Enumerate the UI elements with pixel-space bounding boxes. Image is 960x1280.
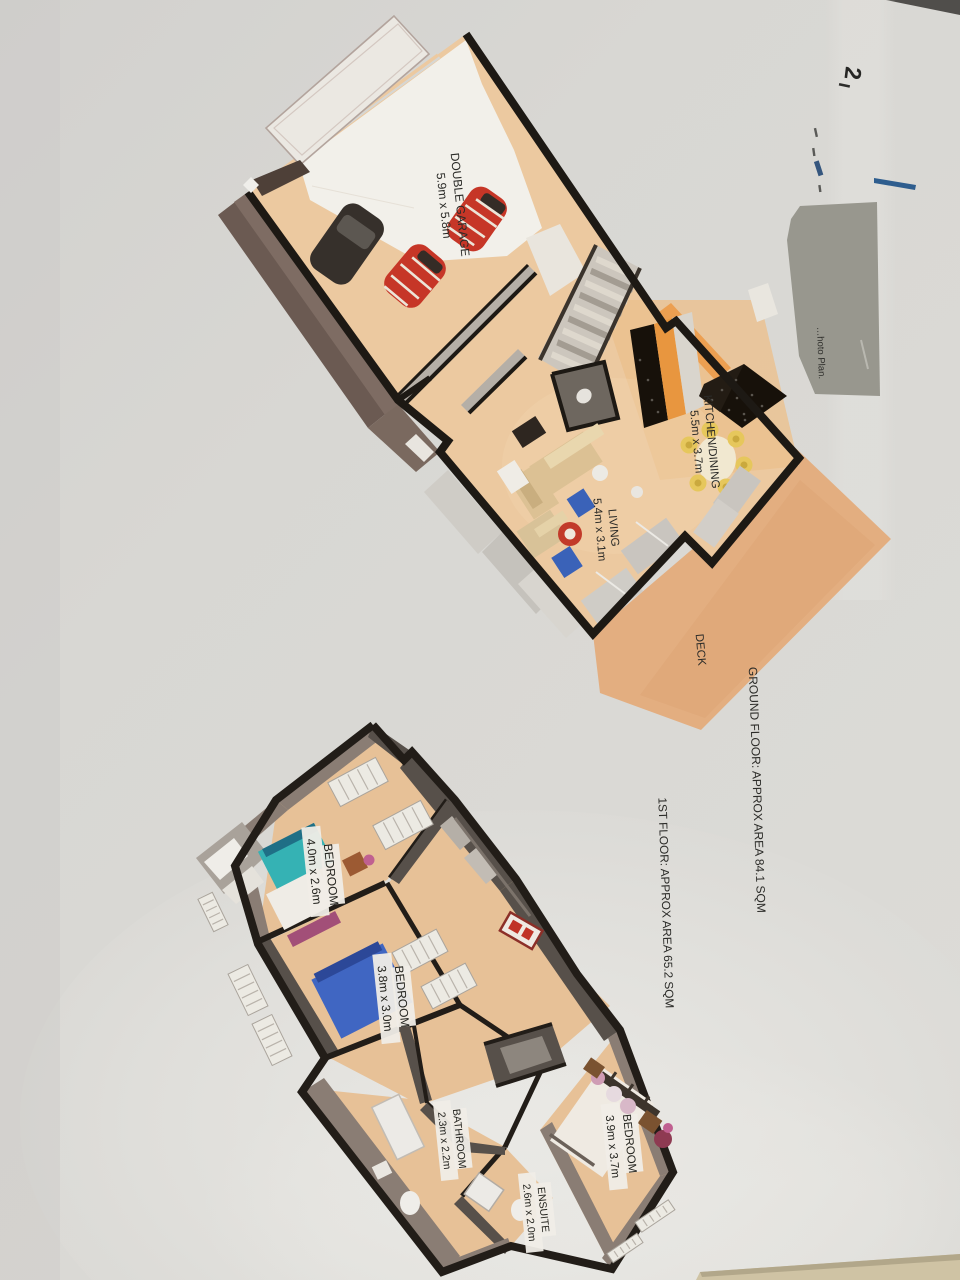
svg-text:…hoto Plan.: …hoto Plan. bbox=[814, 327, 827, 380]
